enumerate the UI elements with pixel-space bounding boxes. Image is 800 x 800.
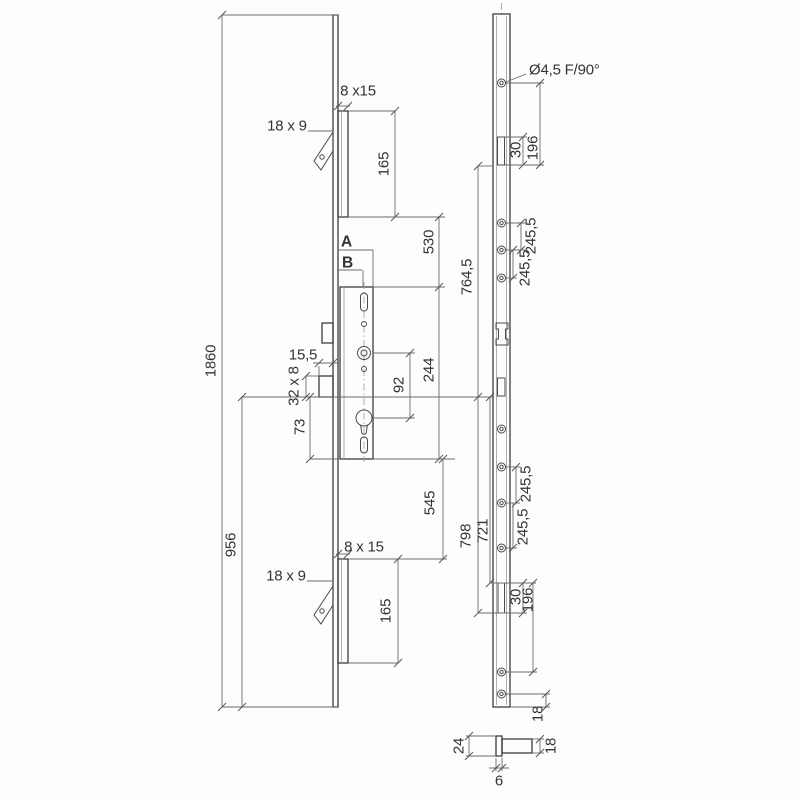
dim-30-top-label: 30 (508, 142, 525, 158)
ref-a-label: A (341, 234, 352, 251)
dim-196-bottom-label: 196 (520, 588, 537, 612)
dim-545-label: 545 (422, 491, 439, 515)
dim-798-label: 798 (458, 524, 475, 548)
dim-245-4-label: 245,5 (515, 509, 532, 546)
technical-drawing: 1860 956 8 x15 18 x 9 165 A (0, 0, 800, 800)
dim-1860-label: 1860 (203, 345, 220, 378)
dim-15-5-label: 15,5 (289, 347, 317, 364)
dim-245-1-label: 245,5 (523, 218, 540, 255)
dim-73-label: 73 (292, 419, 309, 435)
dim-165-top-label: 165 (376, 152, 393, 176)
background (0, 0, 800, 800)
drawing-canvas: 1860 956 8 x15 18 x 9 165 A (0, 0, 800, 800)
label-8x15-top: 8 x15 (340, 83, 376, 100)
dim-18-end-label: 18 (530, 706, 547, 722)
dim-956-label: 956 (223, 533, 240, 557)
label-8x15-bottom: 8 x 15 (344, 539, 384, 556)
dim-92-label: 92 (391, 377, 408, 393)
dim-244-label: 244 (421, 358, 438, 382)
dim-165-bottom-label: 165 (378, 599, 395, 623)
dim-18-section-label: 18 (543, 738, 560, 754)
screw-hole-spec-label: Ø4,5 F/90° (529, 62, 600, 79)
ref-b-label: B (342, 255, 353, 272)
label-18x9-bottom: 18 x 9 (266, 568, 306, 585)
dim-530-label: 530 (421, 230, 438, 254)
dim-6-label: 6 (495, 773, 503, 790)
dim-764-5-label: 764,5 (459, 259, 476, 296)
dim-245-2-label: 245,5 (517, 250, 534, 287)
dim-32x8-label: 32 x 8 (286, 366, 303, 406)
label-18x9-top: 18 x 9 (267, 118, 307, 135)
dim-721-label: 721 (475, 519, 492, 543)
dim-245-3-label: 245,5 (518, 466, 535, 503)
dim-24-label: 24 (451, 738, 468, 754)
dim-196-top-label: 196 (525, 136, 542, 160)
